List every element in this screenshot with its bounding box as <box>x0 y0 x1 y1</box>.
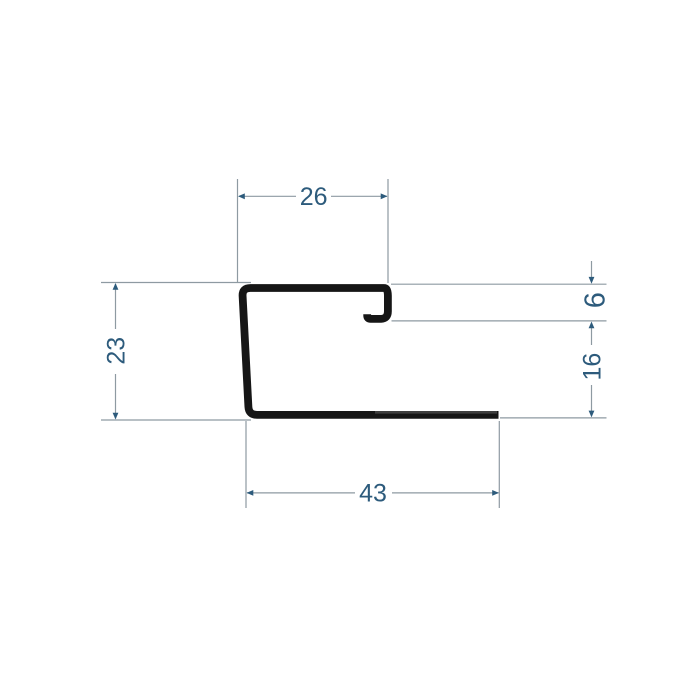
svg-text:23: 23 <box>103 337 131 365</box>
svg-text:26: 26 <box>300 183 328 211</box>
svg-text:43: 43 <box>359 480 387 508</box>
svg-text:16: 16 <box>579 353 607 381</box>
svg-text:6: 6 <box>579 292 611 308</box>
